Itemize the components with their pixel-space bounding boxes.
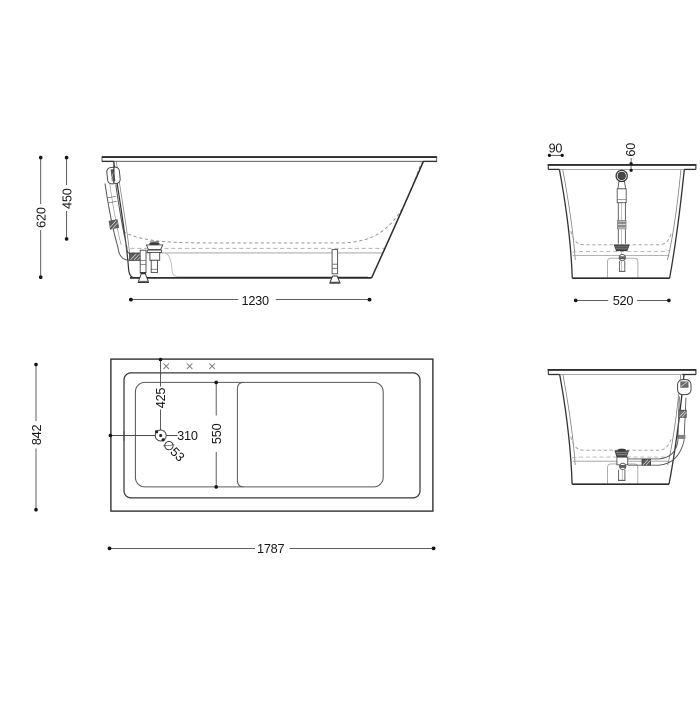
svg-text:550: 550 — [210, 423, 224, 444]
svg-text:310: 310 — [177, 429, 198, 443]
svg-text:425: 425 — [154, 388, 168, 409]
svg-text:450: 450 — [60, 188, 74, 209]
svg-text:842: 842 — [30, 424, 44, 445]
svg-text:1230: 1230 — [241, 294, 269, 308]
svg-text:520: 520 — [613, 294, 634, 308]
svg-text:60: 60 — [624, 143, 638, 157]
svg-text:90: 90 — [549, 142, 563, 156]
svg-text:620: 620 — [35, 207, 49, 228]
svg-text:1787: 1787 — [257, 542, 285, 556]
